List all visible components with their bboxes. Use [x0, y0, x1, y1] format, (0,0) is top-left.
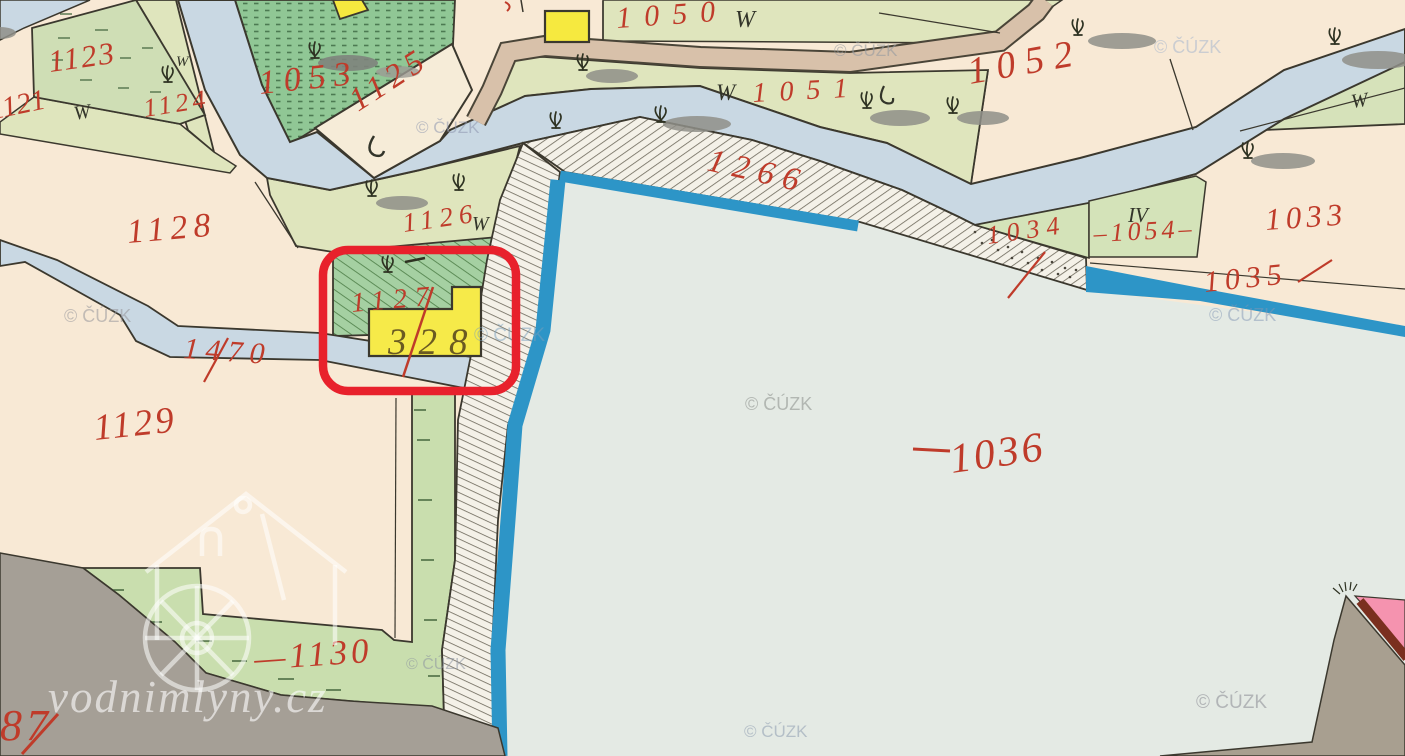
- svg-text:—1130: —1130: [252, 631, 374, 678]
- svg-text:© ČÚZK: © ČÚZK: [416, 118, 480, 137]
- svg-text:vodnimlyny.cz: vodnimlyny.cz: [48, 672, 328, 722]
- svg-text:1051: 1051: [752, 72, 861, 109]
- svg-text:1129: 1129: [92, 399, 179, 448]
- svg-text:1033: 1033: [1264, 196, 1348, 237]
- svg-text:W: W: [716, 80, 737, 105]
- svg-text:87: 87: [0, 701, 52, 750]
- svg-text:© ČÚZK: © ČÚZK: [1209, 304, 1276, 325]
- svg-text:© ČÚZK: © ČÚZK: [474, 324, 545, 346]
- svg-text:W: W: [735, 7, 757, 33]
- svg-text:© ČÚZK: © ČÚZK: [64, 305, 131, 326]
- svg-text:1128: 1128: [125, 206, 217, 251]
- svg-text:328: 328: [387, 322, 480, 363]
- svg-text:© ČÚZK: © ČÚZK: [744, 722, 808, 741]
- svg-text:© ČÚZK: © ČÚZK: [406, 654, 466, 673]
- svg-text:© ČÚZK: © ČÚZK: [834, 41, 898, 60]
- svg-text:W: W: [176, 54, 190, 70]
- svg-text:© ČÚZK: © ČÚZK: [745, 393, 812, 414]
- svg-text:IV: IV: [1127, 203, 1150, 227]
- svg-text:W: W: [472, 213, 491, 235]
- svg-text:© ČÚZK: © ČÚZK: [1154, 36, 1221, 57]
- svg-text:© ČÚZK: © ČÚZK: [1196, 691, 1267, 713]
